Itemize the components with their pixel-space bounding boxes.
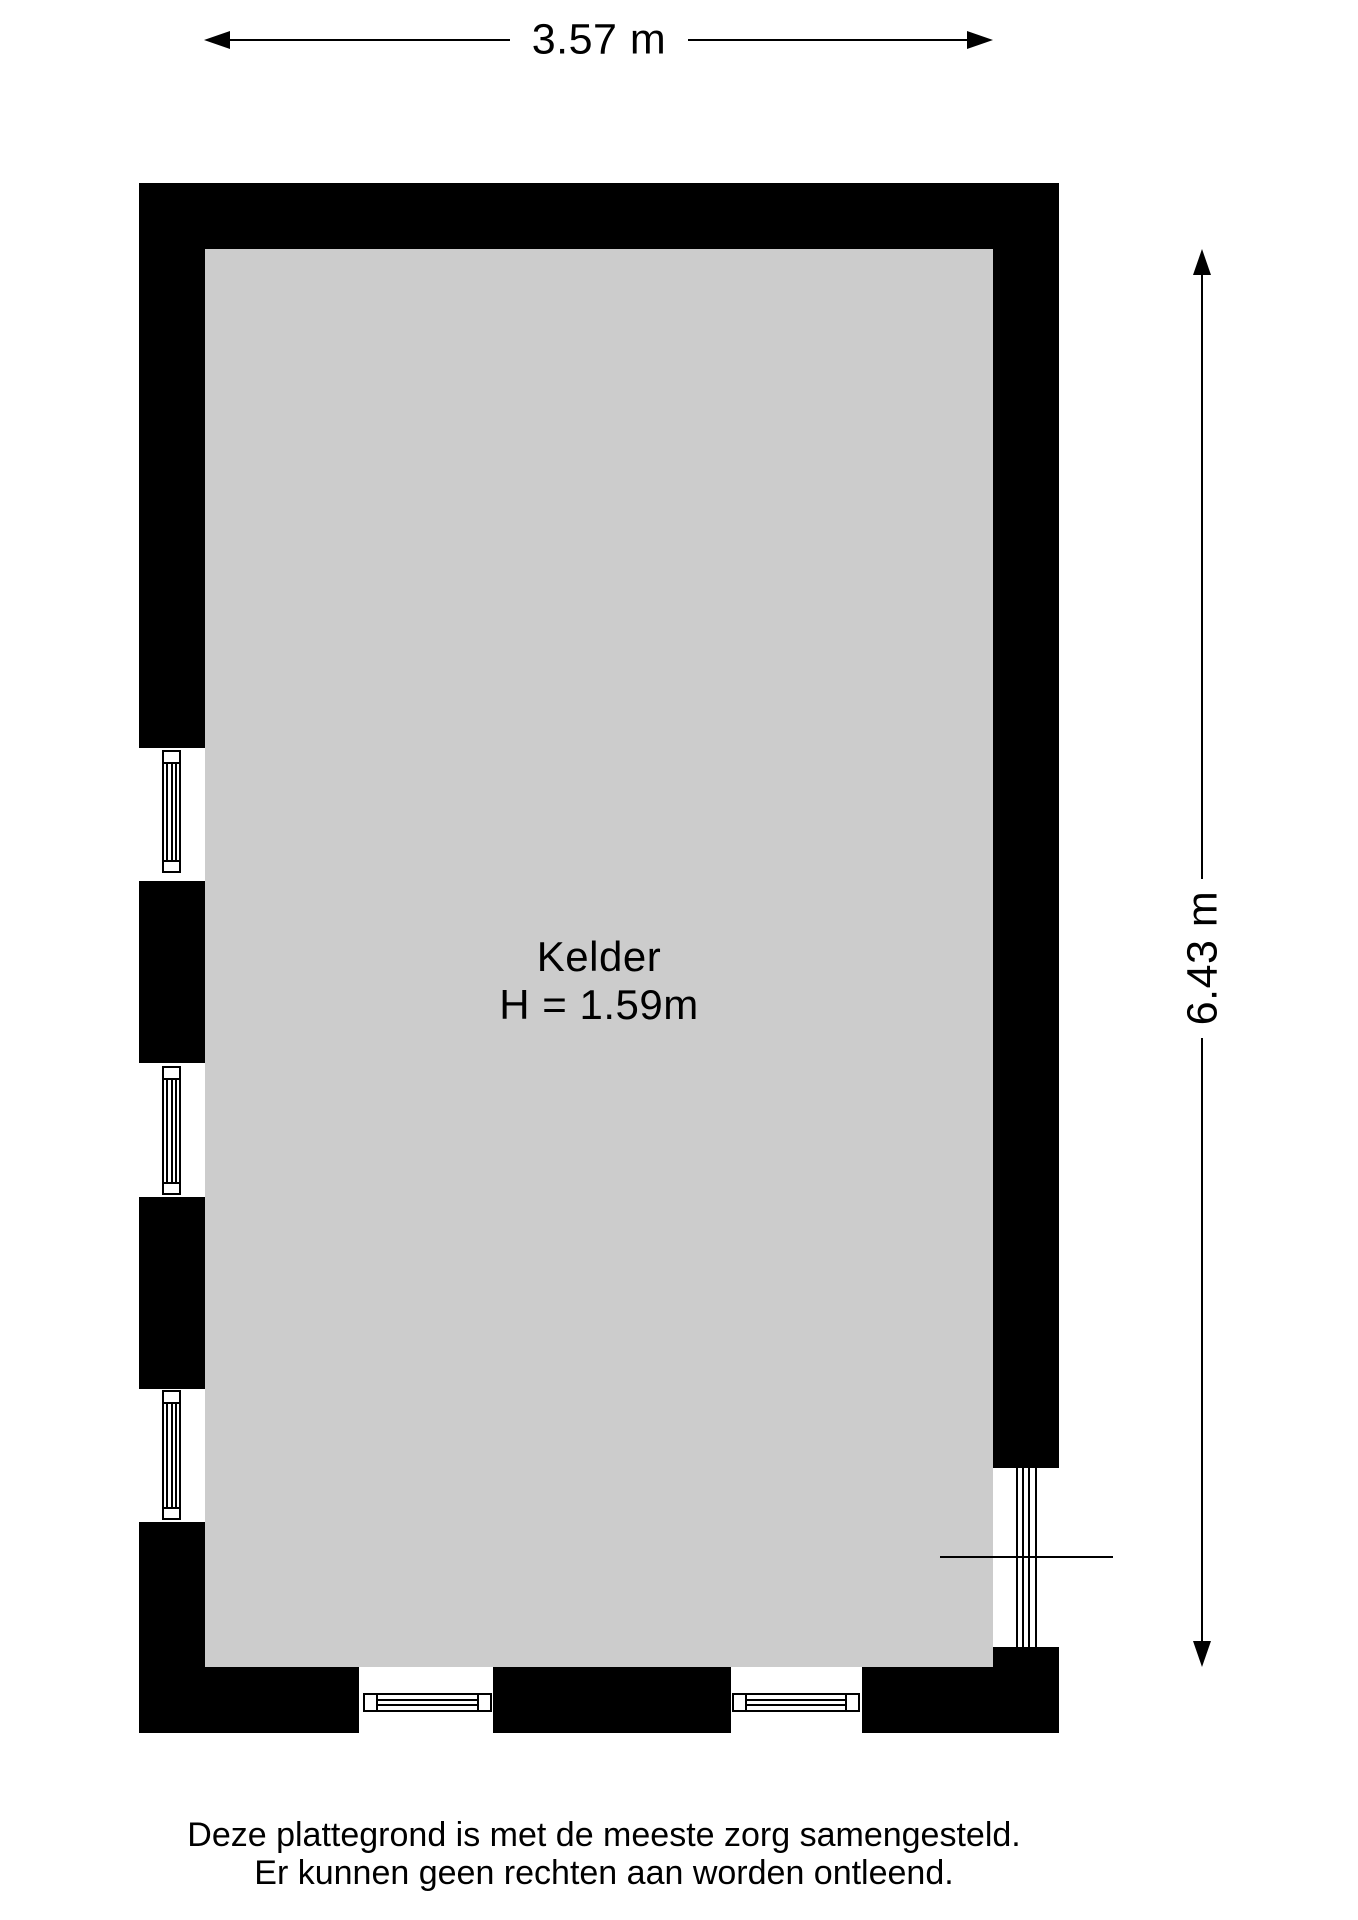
- arrow-down-icon: [1193, 1641, 1211, 1667]
- window-cap: [164, 1068, 179, 1080]
- floor-plan-page: 3.57 m 6.43 m: [0, 0, 1358, 1920]
- disclaimer-line-2: Er kunnen geen rechten aan worden ontlee…: [187, 1854, 1020, 1892]
- wall-top: [139, 183, 1059, 249]
- dimension-line: [688, 39, 975, 41]
- width-dimension-label: 3.57 m: [532, 16, 666, 65]
- window-glass: [164, 764, 179, 860]
- window-cap: [164, 1182, 179, 1193]
- wall-left-segment-2: [139, 881, 205, 1063]
- section-line: [940, 1556, 1113, 1558]
- arrow-up-icon: [1193, 249, 1211, 275]
- room-ceiling-height: H = 1.59m: [499, 981, 698, 1029]
- window-cap: [845, 1695, 858, 1710]
- window-cap: [734, 1695, 747, 1710]
- window-symbol-left-1: [162, 750, 181, 873]
- window-cap: [477, 1695, 490, 1710]
- window-symbol-bottom-2: [732, 1693, 860, 1712]
- height-dimension-label: 6.43 m: [1179, 891, 1228, 1025]
- window-cap: [164, 860, 179, 871]
- wall-left-segment-1: [139, 183, 205, 748]
- dimension-line: [1201, 1038, 1203, 1643]
- window-cap: [164, 752, 179, 764]
- wall-bottom-segment-3: [862, 1667, 993, 1733]
- arrow-right-icon: [967, 31, 993, 49]
- room-name: Kelder: [499, 933, 698, 981]
- wall-bottom-segment-1: [139, 1667, 359, 1733]
- window-glass: [164, 1080, 179, 1182]
- window-symbol-left-3: [162, 1390, 181, 1520]
- window-symbol-left-2: [162, 1066, 181, 1195]
- window-cap: [164, 1507, 179, 1518]
- window-glass: [164, 1404, 179, 1507]
- wall-right-segment-1: [993, 183, 1059, 1468]
- wall-left-segment-3: [139, 1197, 205, 1389]
- dimension-line: [1201, 273, 1203, 879]
- window-cap: [365, 1695, 378, 1710]
- door-opening-symbol: [1016, 1468, 1037, 1648]
- disclaimer-line-1: Deze plattegrond is met de meeste zorg s…: [187, 1816, 1020, 1854]
- window-glass: [378, 1695, 477, 1710]
- room-label: Kelder H = 1.59m: [499, 933, 698, 1029]
- wall-right-segment-2: [993, 1647, 1059, 1733]
- window-cap: [164, 1392, 179, 1404]
- wall-bottom-segment-2: [493, 1667, 731, 1733]
- window-symbol-bottom-1: [363, 1693, 492, 1712]
- window-glass: [747, 1695, 845, 1710]
- dimension-line: [222, 39, 510, 41]
- disclaimer: Deze plattegrond is met de meeste zorg s…: [187, 1816, 1020, 1892]
